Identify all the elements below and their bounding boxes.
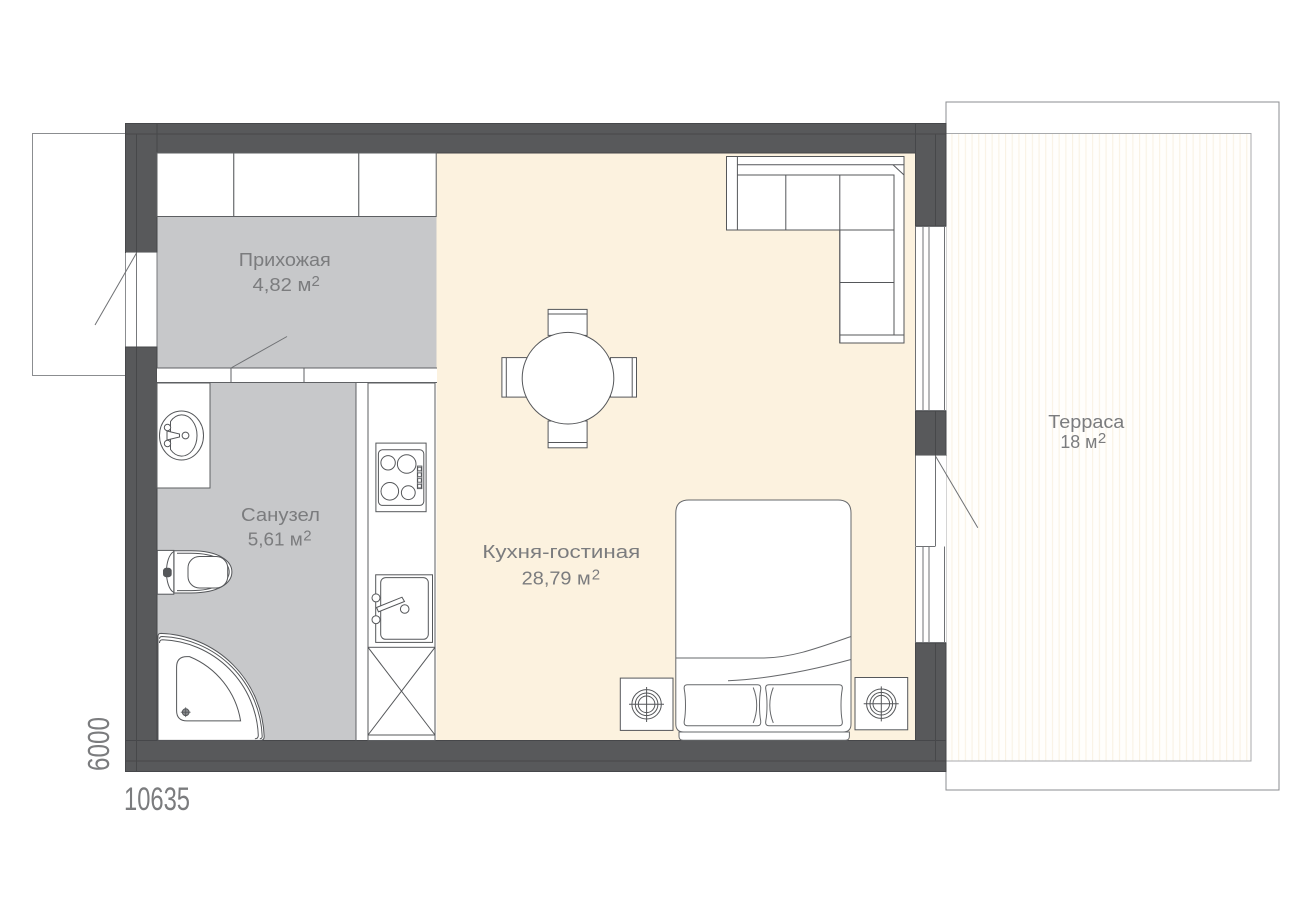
- svg-text:28,79 м: 28,79 м: [522, 569, 591, 589]
- svg-text:2: 2: [1098, 430, 1106, 447]
- svg-text:Терраса: Терраса: [1048, 412, 1125, 432]
- svg-text:10635: 10635: [124, 781, 190, 817]
- svg-text:4,82 м: 4,82 м: [253, 275, 312, 295]
- svg-text:18 м: 18 м: [1060, 432, 1097, 452]
- svg-text:2: 2: [592, 567, 600, 584]
- svg-text:5,61 м: 5,61 м: [248, 530, 303, 550]
- svg-text:Прихожая: Прихожая: [239, 250, 331, 270]
- svg-text:2: 2: [312, 273, 320, 290]
- svg-text:2: 2: [303, 528, 311, 545]
- svg-text:Кухня-гостиная: Кухня-гостиная: [482, 542, 640, 562]
- svg-text:6000: 6000: [81, 717, 116, 771]
- svg-text:Санузел: Санузел: [241, 505, 320, 525]
